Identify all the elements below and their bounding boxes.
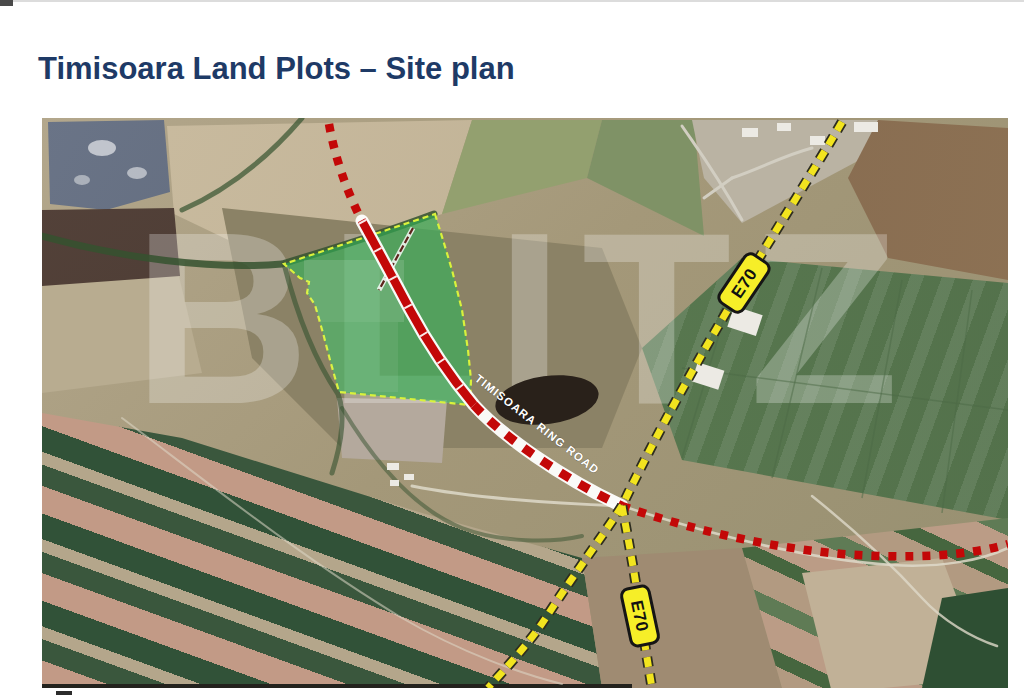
farm-road: [812, 496, 997, 646]
scan-artifact-mark: [56, 691, 72, 695]
cloud-blotch: [88, 140, 116, 156]
e70-branch-left: [488, 506, 622, 688]
ring-road-dotted-north: [329, 124, 362, 221]
site-plan-map: BLITZ: [42, 118, 1008, 688]
cloud-blotch: [74, 175, 90, 185]
blue-roof-building: [854, 122, 878, 132]
building: [810, 136, 825, 145]
route-shield-e70-south: E70: [620, 585, 659, 648]
page-top-edge: [0, 0, 1024, 2]
farm-building: [692, 362, 725, 390]
farm-building: [404, 474, 414, 480]
village-street: [732, 148, 812, 178]
building: [777, 123, 791, 131]
plot-light-patch: [308, 322, 398, 392]
page-title: Timisoara Land Plots – Site plan: [38, 52, 515, 86]
building: [742, 128, 758, 137]
farm-building: [390, 480, 399, 486]
farm-road: [622, 506, 1008, 566]
ring-road-dotted-east: [622, 506, 1008, 556]
map-overlay: TIMISOARA RING ROAD E70 E70: [42, 118, 1008, 688]
route-shield-e70-north: E70: [716, 251, 772, 315]
hedgerow: [182, 118, 302, 210]
farm-building: [387, 463, 399, 470]
cloud-blotch: [127, 167, 147, 179]
field-boundary: [862, 280, 902, 498]
field-boundary: [772, 268, 822, 478]
farm-track: [122, 418, 562, 684]
scan-corner-mark: [0, 0, 13, 6]
village-street: [682, 126, 742, 220]
